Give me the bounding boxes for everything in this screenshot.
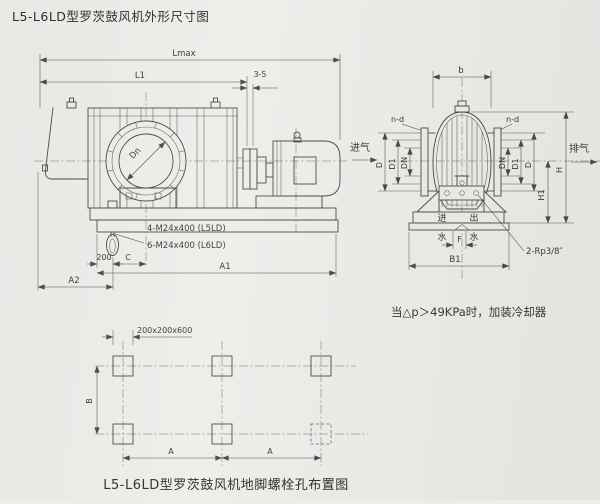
top-plug [455,106,469,112]
coupling-disc [250,149,257,189]
dim-label-d-right: D [524,162,533,168]
dim-label-lmax: Lmax [172,49,195,59]
dim-label-b: b [458,66,463,76]
side-view-drawing: Lmax L1 3-5 [34,49,348,290]
gusset-right [484,191,506,212]
tank-bolt [43,165,48,171]
anchor-note-l6ld: 6-M24x400 (L6LD) [147,241,226,251]
engineering-drawing: L5-L6LD型罗茨鼓风机外形尺寸图 Lmax L1 3-5 [0,0,600,500]
dim-label-dn-right: DN [498,157,507,169]
motor-block [256,196,322,208]
inlet-flange-circle: Dn [106,121,186,201]
exhaust-label: 排气 [569,142,589,155]
intake-flange [421,128,428,196]
water-out-label-bottom: 水 [469,231,478,243]
dim-label-b1: B1 [449,255,460,265]
dim-label-nd-left: n-d [391,115,404,124]
dim-label-d1-left: D1 [388,158,397,169]
dim-label-block-size: 200x200x600 [137,326,192,335]
water-in-label-top: 进 [437,213,446,224]
oil-tank [45,108,87,179]
dim-label-foundation-b: B [85,398,94,404]
dim-label-d-left: D [375,162,384,168]
dim-label-d1-right: D1 [511,158,520,169]
water-out-label-top: 出 [469,212,478,224]
motor-assembly [237,132,340,208]
dim-label-nd-right: n-d [506,115,519,124]
dim-label-l1: L1 [135,71,145,81]
thread-label: 2-Rp3/8″ [526,247,563,257]
dim-label-h: H [555,167,564,173]
dim-label-200: 200 [96,253,111,262]
filler-cap-right [211,102,220,108]
end-view-drawing: D D1 DN DN D1 D n-d n-d b 进气 排气 [350,66,600,282]
dim-label-a-right: A [267,447,273,456]
filler-cap-left [67,102,76,108]
dim-label-dn-left: DN [400,157,409,169]
intake-label: 进气 [350,141,370,154]
coupling-disc [243,149,250,189]
cooler-note: 当△p＞49KPa时，加装冷却器 [391,305,547,319]
pedestal-base [409,223,509,230]
dim-label-h1: H1 [537,189,546,200]
motor-eyebolt [294,132,300,138]
foundation-caption: L5-L6LD型罗茨鼓风机地脚螺栓孔布置图 [103,477,348,493]
dim-label-a2: A2 [68,276,79,286]
motor-body [273,141,340,196]
anchor-bolt [107,201,119,256]
page-title: L5-L6LD型罗茨鼓风机外形尺寸图 [12,9,209,24]
dim-label-f: F [457,235,462,244]
mounting-bracket [439,186,484,200]
water-in-label-bottom: 水 [437,231,446,243]
dim-label-c: C [125,253,131,262]
anchor-note-l5ld: 4-M24x400 (L5LD) [147,224,226,234]
base-plate-top [90,208,336,220]
dim-label-a1: A1 [219,262,230,272]
dim-label-a-left: A [168,447,174,456]
dim-label-coupling-gap: 3-5 [253,70,266,79]
pedestal-band [413,212,504,223]
foundation-plan: 200x200x600 B A A L5-L6LD型罗茨鼓风机地脚螺栓孔布置图 [85,326,368,493]
